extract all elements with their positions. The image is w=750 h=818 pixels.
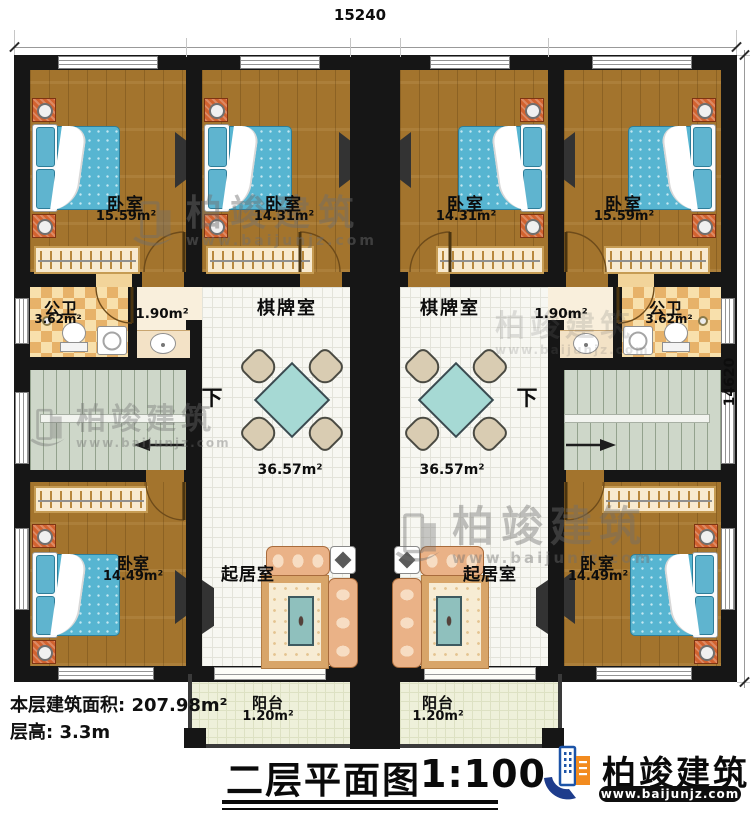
extension-line [548, 38, 549, 57]
extension-line [350, 38, 351, 57]
door-arc [96, 232, 654, 520]
dim-line-top [14, 47, 737, 48]
balcony-right-area: 1.20m² [412, 709, 463, 724]
wash-right-area: 1.90m² [534, 306, 587, 322]
bedroom-bl-area: 14.49m² [103, 569, 163, 584]
bath-left-area: 3.62m² [34, 312, 81, 326]
living-right-name: 起居室 [463, 560, 517, 585]
page-title-scale: 1:100 [420, 752, 546, 796]
stairs-right-down-label: 下 [517, 382, 538, 412]
brand-logo-icon [540, 744, 598, 800]
wash-left-area: 1.90m² [135, 306, 188, 322]
extension-line [400, 38, 401, 57]
games-left-name: 棋牌室 [257, 294, 317, 320]
title-underline [222, 800, 498, 804]
living-left-name: 起居室 [221, 560, 275, 585]
stair-direction-arrow [134, 439, 616, 451]
extension-line [14, 30, 15, 55]
extension-line [186, 38, 187, 57]
bedroom-tr-area: 15.59m² [594, 209, 654, 224]
bedroom-tl-area: 15.59m² [96, 209, 156, 224]
bedroom-tml-area: 14.31m² [254, 209, 314, 224]
games-right-name: 棋牌室 [420, 294, 480, 320]
floor-area-text: 本层建筑面积: 207.98m² [10, 691, 228, 717]
stairs-left-down-label: 下 [202, 382, 223, 412]
page-title: 二层平面图 [226, 750, 421, 804]
floor-plan-page: 15240 14620 [0, 0, 750, 818]
door-leaf [132, 232, 618, 520]
bath-right-area: 3.62m² [645, 312, 692, 326]
dim-top-value: 15240 [334, 6, 386, 24]
title-underline-thin [222, 808, 498, 810]
floor-height-text: 层高: 3.3m [10, 718, 110, 744]
dim-right-value: 14620 [700, 352, 750, 412]
balcony-left-area: 1.20m² [242, 709, 293, 724]
brand-url: www.baijunjz.com [599, 786, 741, 802]
games-right-area: 36.57m² [419, 462, 484, 478]
bedroom-br-area: 14.49m² [568, 569, 628, 584]
extension-line [736, 30, 737, 55]
bedroom-tmr-area: 14.31m² [436, 209, 496, 224]
games-left-area: 36.57m² [257, 462, 322, 478]
